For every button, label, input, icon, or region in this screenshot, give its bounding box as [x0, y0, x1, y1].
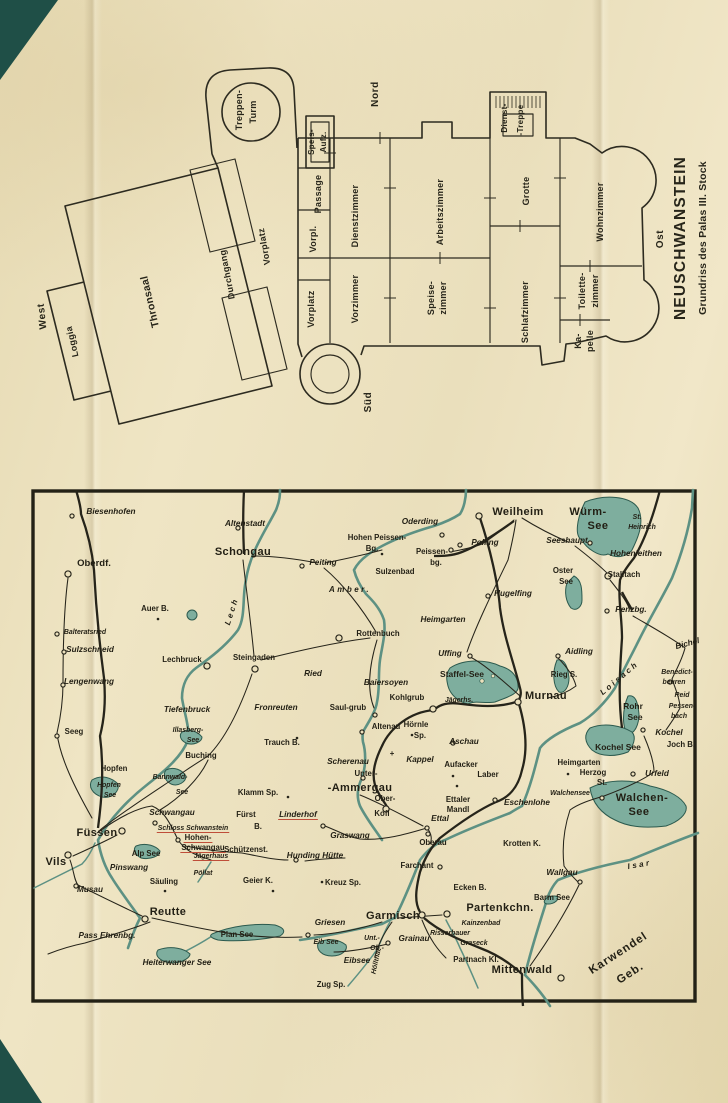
town-marker: [458, 543, 462, 547]
map-label: Grainau: [399, 934, 430, 943]
map-label: Kainzenbad: [462, 920, 501, 927]
railway-murnau-ammergau: [374, 702, 516, 807]
map-label: B.: [254, 822, 262, 831]
peak-marker: [164, 890, 167, 893]
town-marker: [600, 796, 604, 800]
plan-room-label: Turm: [248, 100, 258, 123]
map-label: Hohenleithen: [610, 549, 662, 558]
town-marker: [493, 798, 497, 802]
map-label: Trauch B.: [264, 738, 300, 747]
plan-room-label: Passage: [313, 175, 323, 214]
map-label: Walchen-: [616, 792, 669, 804]
map-label: Kofl: [374, 809, 389, 818]
map-label: Krotten K.: [503, 839, 541, 848]
map-label: Hopfen: [97, 782, 121, 789]
map-label: Jägerhaus: [194, 853, 229, 860]
town-marker: [306, 933, 310, 937]
map-label: See: [628, 806, 649, 818]
map-label: Penzbg.: [615, 605, 646, 614]
map-label: Rieg S.: [551, 670, 577, 679]
peak-marker: [456, 785, 459, 788]
compass-west-label: West: [36, 303, 50, 330]
map-label: See: [176, 789, 188, 796]
plan-room-label: Vorzimmer: [350, 275, 360, 324]
plan-room-label: Wohnzimmer: [595, 182, 605, 242]
map-label: Polling: [471, 538, 498, 547]
map-label: Ried: [304, 669, 323, 678]
plan-room-label: Loggia: [64, 325, 81, 358]
plan-room-label: Grotte: [521, 177, 531, 206]
town-marker: [373, 713, 377, 717]
map-label: Auer B.: [141, 604, 169, 613]
peak-marker: [411, 734, 414, 737]
pond-auerberg: [187, 610, 197, 620]
map-label: Staffel-See: [440, 669, 484, 679]
town-marker: [444, 911, 450, 917]
map-label: Altenstadt: [224, 519, 265, 528]
map-label: beuren: [663, 679, 686, 686]
map-label: Murnau: [525, 690, 567, 702]
peak-marker: [157, 618, 160, 621]
town-marker: [588, 541, 592, 545]
town-marker: [252, 666, 258, 672]
map-label: bach: [671, 713, 687, 720]
map-label: bg.: [430, 558, 442, 567]
map-label: Kohlgrub: [390, 693, 425, 702]
map-label: Buching: [185, 751, 216, 760]
road: [261, 638, 370, 660]
map-label: Schwangau: [181, 843, 225, 852]
map-label: Pöllat: [194, 870, 213, 877]
plan-door-ticks: [324, 132, 590, 326]
scanned-booklet-page: LoggiaThronsaalDurchgangVorplatzTreppen-…: [0, 0, 728, 1103]
plan-room-label: Speise-: [426, 281, 436, 315]
river-isar: [525, 833, 698, 1006]
map-label: Heiterwanger See: [143, 958, 212, 967]
map-label: Jägerhs.: [445, 697, 473, 704]
map-label: Pass Ehrenbg.: [79, 931, 136, 940]
plan-south-tower-inner: [311, 355, 349, 393]
town-marker: [176, 838, 180, 842]
map-label: See: [559, 577, 574, 586]
road: [324, 568, 376, 632]
town-marker: [153, 821, 157, 825]
map-label: Hörnle: [404, 720, 429, 729]
map-label: Aidling: [564, 647, 593, 656]
map-label: Hohen Peissen-: [348, 533, 407, 542]
map-label: Ettaler: [446, 795, 470, 804]
staffelsee-island: [491, 674, 495, 678]
town-marker: [425, 826, 429, 830]
map-label: Garmisch: [366, 910, 420, 922]
map-label: Unt.-: [364, 935, 380, 942]
map-label: Geb.: [615, 960, 646, 986]
peak-marker: [321, 881, 324, 884]
map-label: Zug Sp.: [317, 980, 346, 989]
map-label: See: [187, 737, 199, 744]
map-label: Tiefenbruck: [164, 705, 211, 714]
map-label: Risserbauer: [430, 930, 470, 937]
peak-marker: [381, 553, 384, 556]
plan-room-label: Dienstzimmer: [350, 184, 360, 247]
town-marker: [360, 730, 364, 734]
town-marker: [204, 663, 210, 669]
map-label: Peiting: [309, 558, 336, 567]
town-marker: [336, 635, 342, 641]
map-label: Bg.: [366, 544, 379, 553]
plan-durchgang-rects: [190, 159, 287, 380]
map-label: Vils: [46, 856, 67, 868]
map-label: Hohen-: [185, 833, 212, 842]
map-label: St.: [633, 514, 642, 521]
town-marker: [386, 941, 390, 945]
map-label: Kreuz Sp.: [325, 878, 361, 887]
map-label: Lengenwang: [64, 677, 114, 686]
map-label: Schwangau: [149, 808, 195, 817]
plan-room-label: Durchgang: [217, 249, 236, 300]
plan-room-label: Aufz.: [319, 131, 328, 152]
map-label: Reid: [675, 692, 691, 699]
map-label: Walchensee: [550, 790, 590, 797]
town-marker: [476, 513, 482, 519]
plan-subtitle: Grundriss des Palas III. Stock: [697, 161, 709, 315]
map-label: Weilheim: [492, 506, 543, 518]
town-marker: [605, 609, 609, 613]
peak-marker: [287, 796, 290, 799]
map-label: Alp See: [132, 849, 161, 858]
map-label: Laber: [477, 770, 498, 779]
map-label: Eschenlohe: [504, 798, 550, 807]
map-bavarian-alps: BiesenhofenOberdf.AltenstadtSchongauHohe…: [30, 488, 700, 1008]
map-label: Schongau: [215, 546, 271, 558]
map-label: Partnach Kl.: [453, 955, 499, 964]
plan-room-label: Ka-: [573, 333, 583, 348]
map-label: Unter-: [355, 769, 378, 778]
plan-room-label: Treppen-: [234, 90, 244, 130]
town-marker: [515, 699, 521, 705]
map-label: Würm-: [569, 506, 606, 518]
plan-room-label: zimmer: [438, 281, 448, 315]
map-label: Ettal: [431, 814, 449, 823]
map-label: Wallgau: [546, 868, 577, 877]
town-marker: [300, 564, 304, 568]
plan-room-label: Schlafzimmer: [520, 281, 530, 343]
map-label: Farchant: [401, 861, 434, 870]
map-label: Steingaden: [233, 653, 275, 662]
map-label: Aufacker: [444, 760, 477, 769]
map-label: St.: [597, 778, 607, 787]
compass-east-label: Ost: [655, 230, 666, 249]
town-marker: [468, 654, 472, 658]
map-label: Rottenbuch: [356, 629, 400, 638]
map-label: Kochel: [655, 728, 683, 737]
map-label: Musau: [77, 885, 103, 894]
floorplan-neuschwanstein: LoggiaThronsaalDurchgangVorplatzTreppen-…: [30, 58, 720, 468]
map-label: Griesen: [315, 918, 346, 927]
map-label: Hunding Hütte: [287, 851, 344, 860]
map-label: Heimgarten: [558, 758, 601, 767]
map-label: +: [390, 749, 395, 758]
map-label: Oderding: [402, 517, 438, 526]
map-label: Pinswang: [110, 863, 148, 872]
plan-room-label: Vorplatz: [256, 227, 272, 266]
town-marker: [321, 824, 325, 828]
map-label: Baiersoyen: [364, 678, 408, 687]
map-label: Kochel See: [595, 742, 641, 752]
map-label: Graswang: [330, 831, 370, 840]
town-marker: [578, 880, 582, 884]
map-label: Schützenst.: [224, 845, 268, 854]
map-label: Amber.: [328, 585, 371, 594]
plan-room-label: Toilette-: [577, 272, 587, 309]
town-marker: [438, 865, 442, 869]
plan-room-label: Vorplatz: [306, 290, 316, 327]
road: [243, 560, 254, 656]
map-label: Urfeld: [645, 769, 670, 778]
map-label: Plan See: [221, 930, 254, 939]
map-label: -Ammergau: [328, 782, 393, 794]
map-label: Oberau: [419, 838, 447, 847]
map-label: Heimgarten: [420, 615, 465, 624]
plan-room-label: Speis-: [307, 129, 316, 155]
map-label: Oster: [553, 566, 573, 575]
town-marker: [558, 975, 564, 981]
railway-murnau-garmisch: [416, 704, 525, 912]
plan-room-label: -Treppe: [516, 104, 525, 135]
map-label: Fürst: [236, 810, 256, 819]
map-label: See: [104, 792, 116, 799]
map-label: Graseck: [460, 940, 488, 947]
plan-room-label: Thronsaal: [138, 275, 162, 329]
town-marker: [65, 571, 71, 577]
town-marker: [55, 734, 59, 738]
plan-title: NEUSCHWANSTEIN: [672, 156, 689, 320]
map-label: Bannwald-: [153, 774, 189, 781]
map-label: Barm See: [534, 893, 571, 902]
map-label: Kappel: [406, 755, 434, 764]
town-marker: [631, 772, 635, 776]
plan-room-label: Vorpl.: [308, 226, 318, 253]
town-marker: [119, 828, 125, 834]
map-label: Hopfen: [101, 764, 128, 773]
road: [57, 578, 92, 818]
map-label: Säuling: [150, 877, 178, 886]
town-marker: [641, 728, 645, 732]
town-marker: [142, 916, 148, 922]
town-marker: [440, 533, 444, 537]
cover-corner-bottom-left: [0, 1039, 42, 1103]
map-label: Eib See: [314, 939, 339, 946]
map-label: Seeg: [65, 727, 84, 736]
map-label: Sp.: [414, 731, 426, 740]
map-label: Sulzenbad: [376, 567, 415, 576]
map-label: Illasberg-: [173, 727, 204, 734]
plan-room-label: pelle: [585, 330, 595, 352]
town-marker: [430, 706, 436, 712]
map-label: Eibsee: [344, 956, 371, 965]
plan-room-label: Arbeitszimmer: [435, 179, 445, 246]
stream-hoellental: [348, 922, 390, 986]
map-label: Peissen-: [416, 547, 448, 556]
map-label: Mittenwald: [492, 964, 553, 976]
map-label: Ober-: [375, 794, 396, 803]
map-label: Reutte: [150, 906, 187, 918]
map-label: Geier K.: [243, 876, 273, 885]
town-marker: [486, 594, 490, 598]
map-label: Rohr: [623, 701, 644, 711]
plan-room-label: zimmer: [590, 274, 600, 308]
map-label: Uffing: [438, 649, 462, 658]
map-label: Klamm Sp.: [238, 788, 278, 797]
map-label: Balteratsried: [64, 629, 107, 636]
map-label: Hugelfing: [494, 589, 532, 598]
staffelsee-island: [480, 679, 484, 683]
map-label: See: [627, 712, 642, 722]
plan-room-label: Dienst-: [500, 103, 509, 132]
map-label: Lechbruck: [162, 655, 202, 664]
town-marker: [449, 548, 453, 552]
peak-marker: [452, 775, 455, 778]
peak-marker: [567, 773, 570, 776]
map-label: Oberdf.: [77, 558, 111, 569]
map-label: Ecken B.: [454, 883, 487, 892]
map-label: See: [587, 520, 608, 532]
map-label: Benedict-: [661, 669, 693, 676]
compass-south-label: Süd: [363, 392, 374, 413]
peak-marker: [272, 890, 275, 893]
map-label: Biesenhofen: [86, 507, 135, 516]
map-label: Füssen: [77, 827, 118, 839]
town-marker: [426, 832, 430, 836]
map-label: Schloss Schwanstein: [158, 825, 228, 832]
map-label: Altenau: [372, 722, 401, 731]
town-marker: [70, 514, 74, 518]
map-label: Mandl: [447, 805, 470, 814]
map-label: Stalltach: [608, 570, 641, 579]
map-label: Lech: [223, 596, 240, 626]
map-label: Pessen-: [669, 703, 696, 710]
map-label: Sulzschneid: [66, 645, 115, 654]
map-label: Seeshaupt: [546, 536, 588, 545]
map-label: Herzog: [580, 768, 607, 777]
map-label: Linderhof: [279, 810, 318, 819]
plan-south-tower-outer: [300, 344, 360, 404]
map-label: Saul-grub: [330, 703, 367, 712]
town-marker: [556, 654, 560, 658]
map-label: Partenkchn.: [466, 902, 533, 914]
road: [370, 640, 377, 708]
map-label: Fronreuten: [254, 703, 297, 712]
map-label: Heinrich: [628, 524, 656, 531]
compass-north-label: Nord: [370, 81, 381, 107]
lake-walchensee: [590, 781, 686, 827]
plan-thronsaal-block: [65, 168, 272, 424]
map-label: Joch B.: [667, 740, 695, 749]
town-marker: [55, 632, 59, 636]
plan-loggia: [47, 282, 111, 400]
map-label: Aschau: [448, 737, 479, 746]
map-label: Scherenau: [327, 757, 369, 766]
